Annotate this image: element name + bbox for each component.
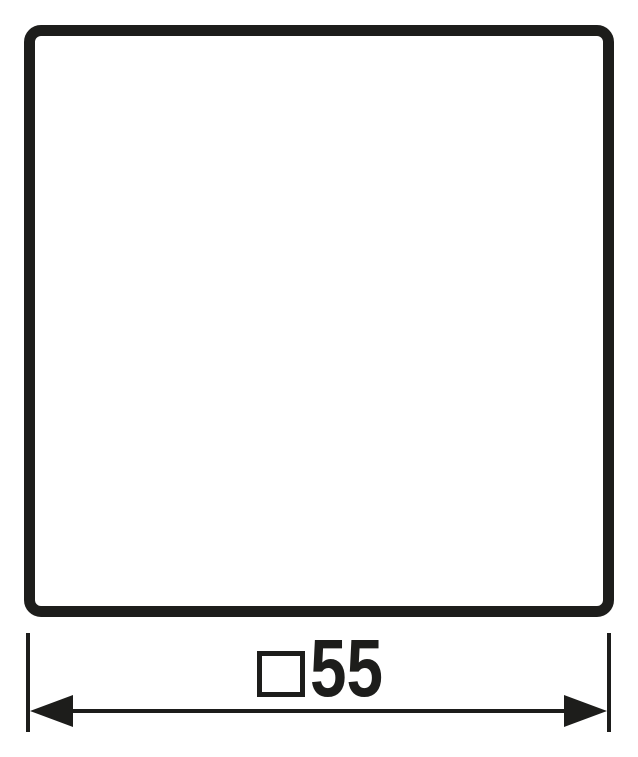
dimension-value: 55	[310, 639, 383, 698]
dimension-drawing-canvas: 55	[0, 0, 638, 757]
square-symbol-icon	[257, 651, 305, 697]
arrowhead-right-icon	[564, 695, 607, 727]
arrowhead-left-icon	[30, 695, 73, 727]
dimension-label: 55	[257, 639, 401, 698]
